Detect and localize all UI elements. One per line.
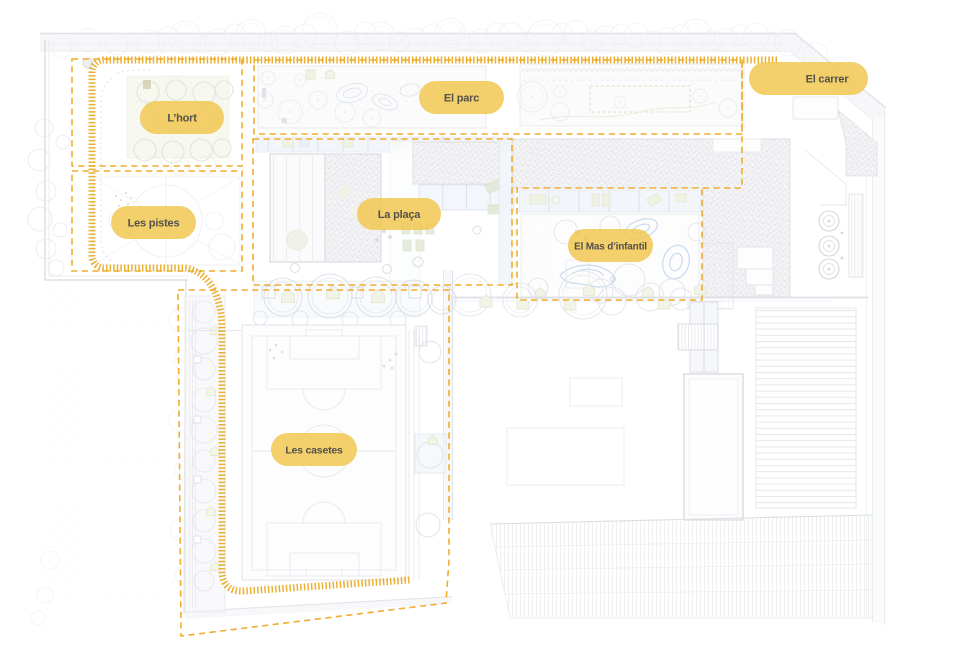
svg-text:El Mas d’infantil: El Mas d’infantil (574, 242, 647, 253)
svg-text:Les pistes: Les pistes (128, 218, 180, 230)
svg-text:L’hort: L’hort (167, 113, 197, 125)
svg-text:El carrer: El carrer (806, 74, 850, 86)
svg-text:Les casetes: Les casetes (285, 445, 343, 457)
svg-text:El parc: El parc (444, 93, 479, 105)
svg-text:La plaça: La plaça (378, 209, 422, 221)
